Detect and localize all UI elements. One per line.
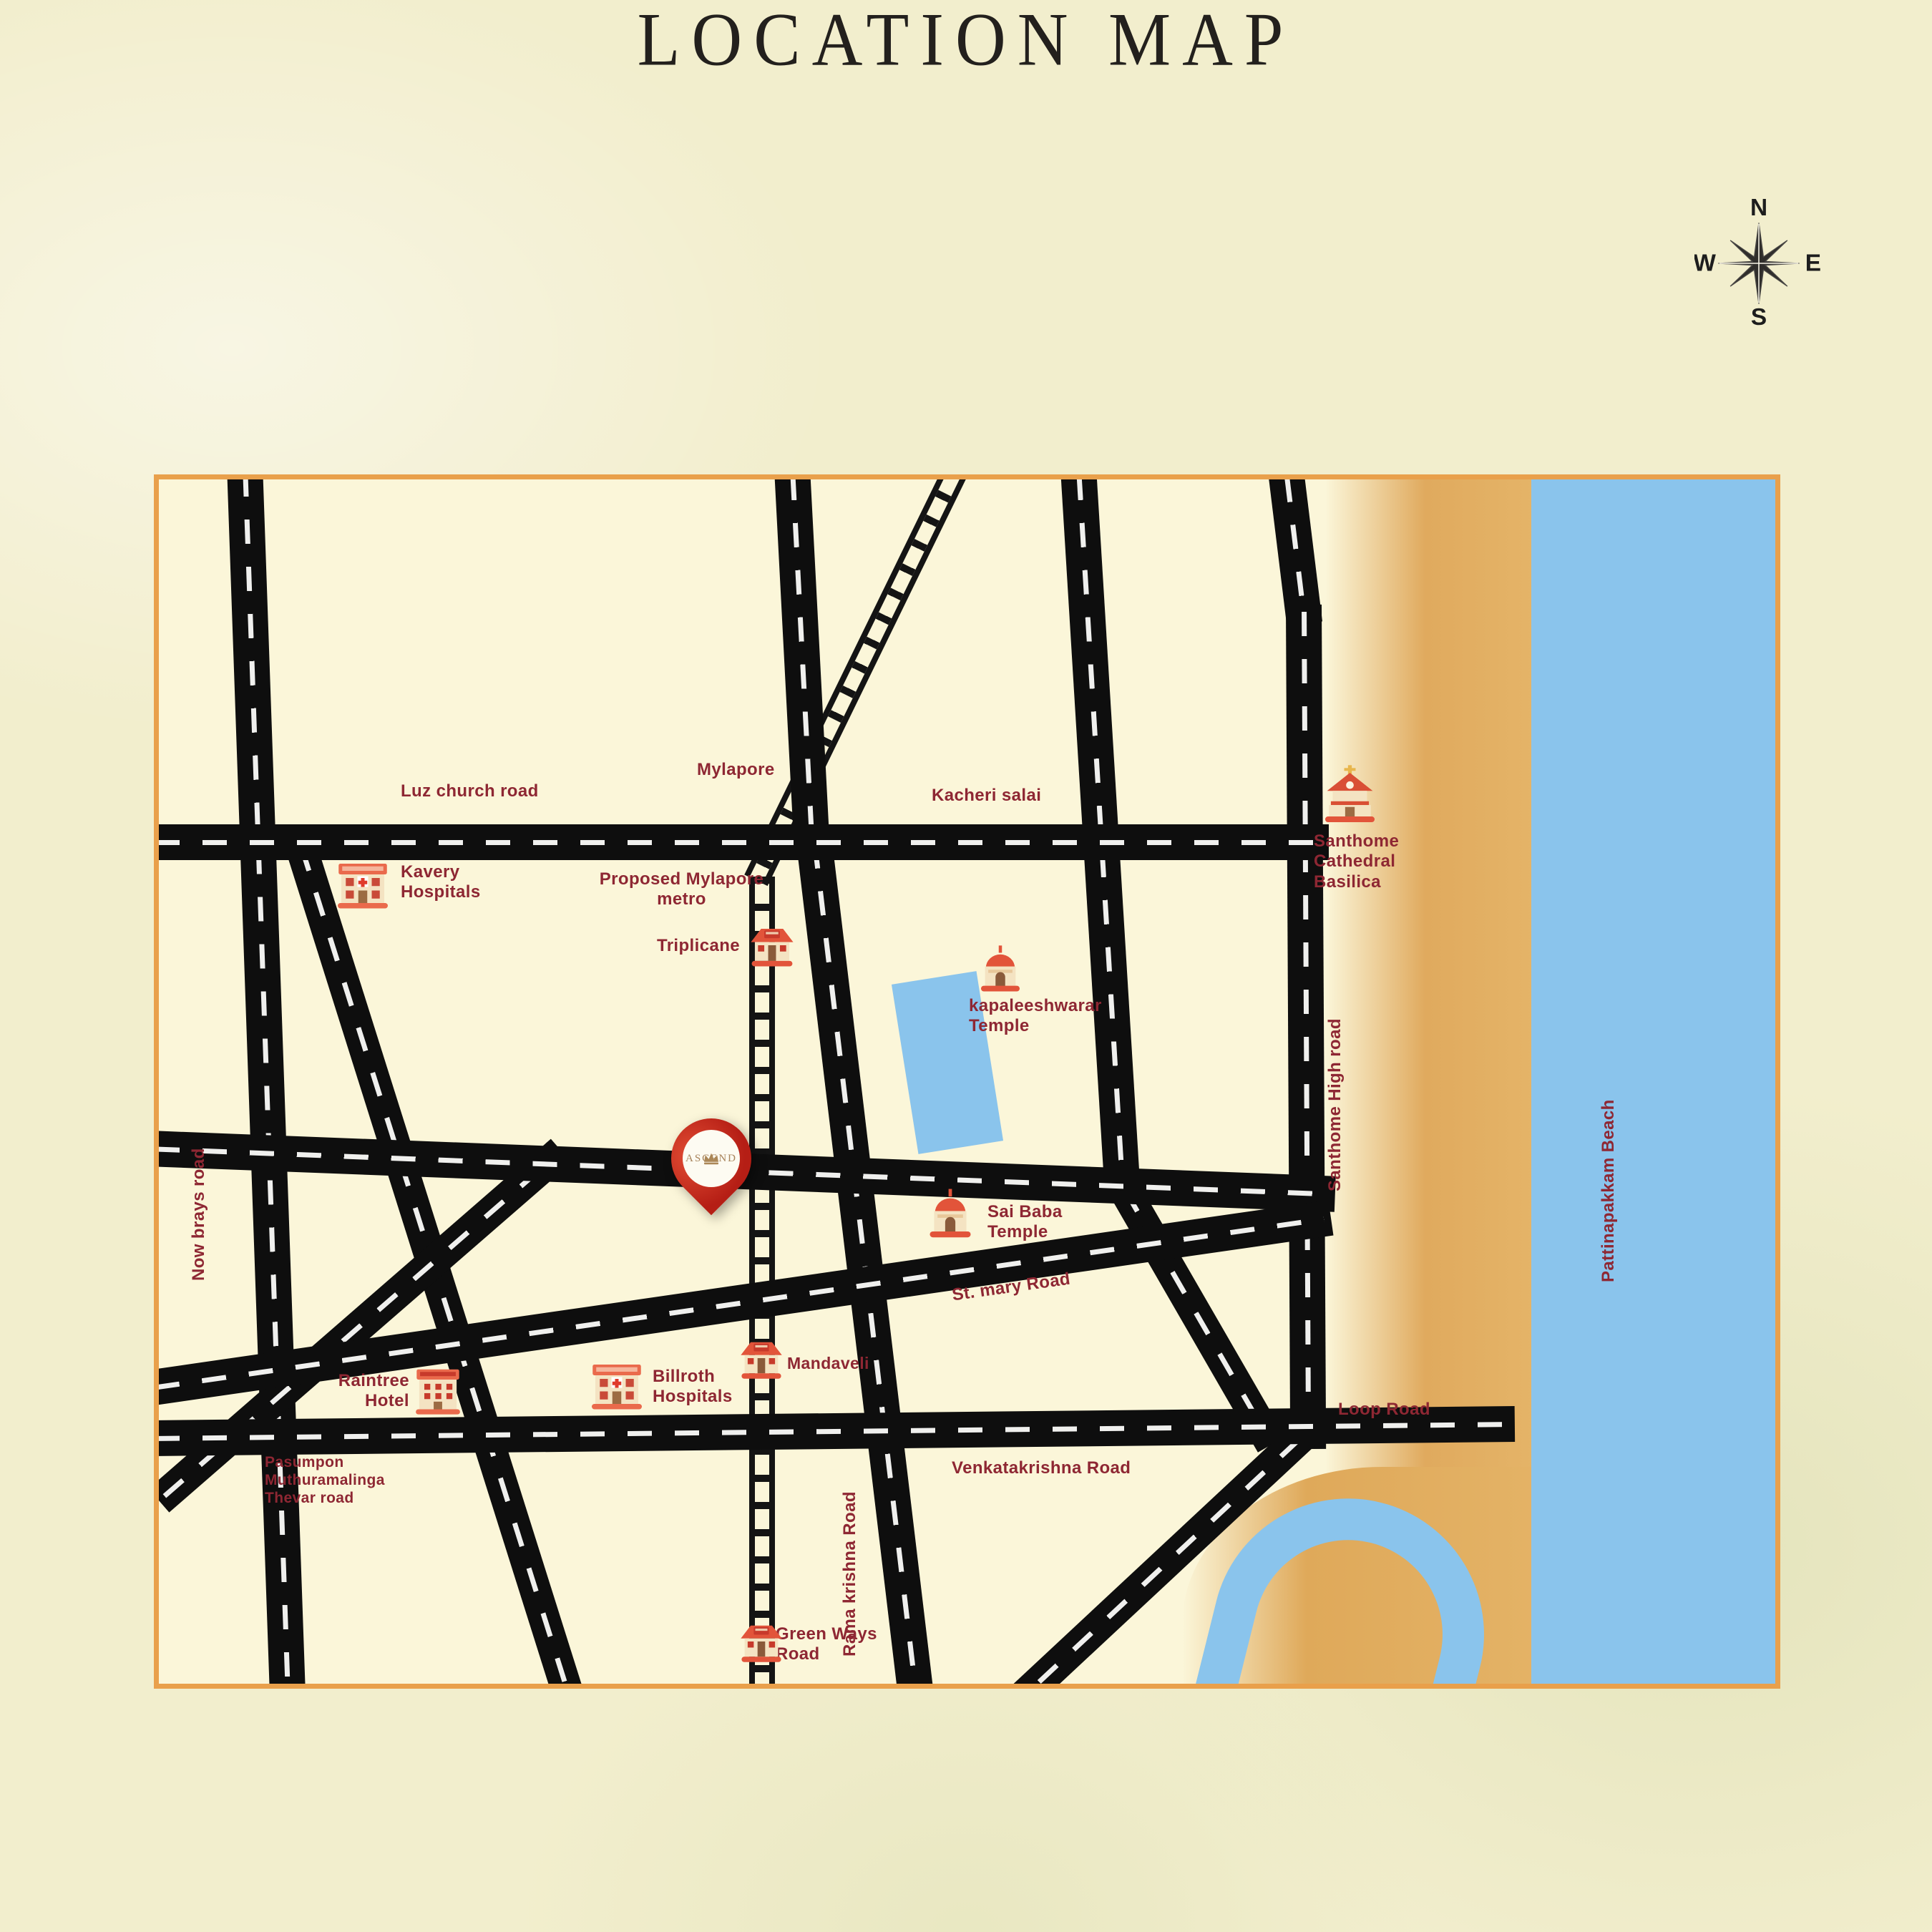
road-label-kacheri-salai: Kacheri salai xyxy=(932,786,1041,806)
road-label-pasumpon: Pasumpon Muthuramalinga Thevar road xyxy=(265,1454,433,1507)
location-map-panel: Luz church road Mylapore Kacheri salai P… xyxy=(154,474,1780,1689)
compass-rose: N E S W xyxy=(1694,199,1823,328)
road-label-venkatakrishna: Venkatakrishna Road xyxy=(952,1458,1131,1478)
hospital-icon xyxy=(588,1354,645,1411)
landmark-label-billroth: Billroth Hospitals xyxy=(653,1367,746,1407)
church-icon xyxy=(1319,764,1380,825)
crown-icon xyxy=(701,1151,721,1166)
hospital-icon xyxy=(334,853,391,910)
station-label-green-ways: Green Ways Road xyxy=(776,1624,879,1665)
compass-w-label: W xyxy=(1694,250,1716,276)
road-santhome-curve xyxy=(1268,474,1322,625)
area-label-mylapore: Mylapore xyxy=(697,760,775,780)
landmark-label-raintree: Raintree Hotel xyxy=(327,1371,409,1412)
road-label-beach: Pattinapakkam Beach xyxy=(1599,960,1619,1282)
temple-icon xyxy=(975,943,1026,995)
road-label-now-brays: Now brays road xyxy=(189,1138,209,1281)
compass-s-label: S xyxy=(1751,304,1767,328)
landmark-label-santhome-cathedral: Santhome Cathedral Basilica xyxy=(1314,831,1421,892)
road-label-loop: Loop Road xyxy=(1338,1400,1430,1420)
train-station-icon xyxy=(737,1334,786,1382)
landmark-label-kavery: Kavery Hospitals xyxy=(401,862,497,903)
compass-n-label: N xyxy=(1750,199,1767,221)
road-label-luz-church: Luz church road xyxy=(401,781,539,801)
temple-icon xyxy=(923,1186,977,1241)
compass-e-label: E xyxy=(1805,250,1821,276)
road-label-santhome-high: Santhome High road xyxy=(1325,1005,1345,1191)
compass-star-icon: N E S W xyxy=(1694,199,1823,328)
landmark-label-kapaleeshwarar: kapaleeshwarar Temple xyxy=(969,996,1130,1037)
page-title: LOCATION MAP xyxy=(0,0,1932,83)
station-label-triplicane: Triplicane xyxy=(617,936,740,956)
location-pin: ASCEND xyxy=(671,1118,751,1240)
hotel-icon xyxy=(411,1362,465,1416)
train-station-icon xyxy=(737,1617,786,1666)
train-station-icon xyxy=(747,920,797,970)
pin-badge: ASCEND xyxy=(683,1130,740,1187)
station-label-metro: Proposed Mylapore metro xyxy=(594,869,769,910)
road-luz-kacheri xyxy=(154,824,1329,860)
sea-water xyxy=(1531,479,1780,1689)
landmark-label-sai-baba: Sai Baba Temple xyxy=(987,1202,1080,1243)
station-label-mandaveli: Mandaveli xyxy=(787,1354,869,1373)
road-santhome-high xyxy=(1286,605,1326,1449)
